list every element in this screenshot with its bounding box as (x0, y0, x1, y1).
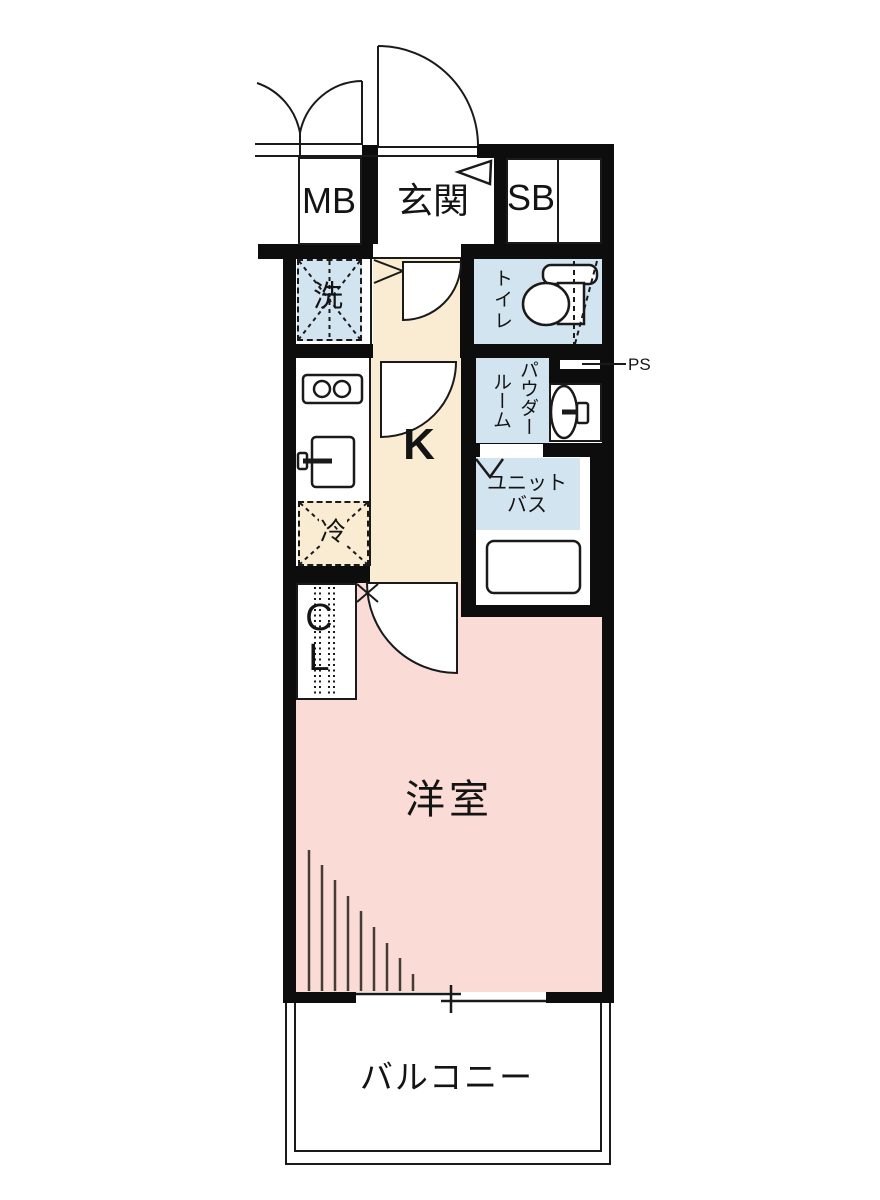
closet-label-line2: L (305, 638, 332, 678)
unit-bath-label-line1: ユニット (487, 474, 567, 496)
unit-bath-label-line2: バス (487, 495, 567, 517)
balcony-label: バルコニー (360, 1061, 534, 1096)
floor-plan: MB 玄関 SB 洗 トイレ K パウダー ルーム PS ユニット バス 冷 C… (0, 0, 880, 1200)
meter-box-door-arcs (257, 81, 362, 157)
entrance-label: 玄関 (397, 182, 469, 220)
western-room-label: 洋室 (405, 779, 493, 821)
powder-room-label-line1: パウダー (514, 360, 541, 472)
meter-box-label: MB (302, 182, 356, 220)
toilet-label: トイレ (491, 269, 511, 332)
stove (303, 375, 362, 403)
kitchen-sink (298, 437, 354, 487)
window-hatch-lines (309, 850, 413, 991)
hall-door (373, 258, 461, 320)
entrance-door (378, 46, 478, 146)
western-room-door (357, 583, 457, 673)
unit-bath-label: ユニット バス (487, 474, 567, 517)
shoe-box-label: SB (507, 179, 555, 217)
closet-label: C L (305, 598, 332, 678)
bathtub (487, 541, 580, 593)
toilet-fixture (523, 265, 597, 325)
closet-label-line1: C (305, 598, 332, 638)
pipe-space-label: PS (628, 355, 651, 375)
corridor-lines (255, 144, 477, 156)
balcony-window (356, 985, 546, 1013)
wash-basin (551, 386, 588, 438)
kitchen-label: K (403, 422, 435, 468)
laundry-label: 洗 (313, 281, 343, 313)
powder-room-label-line2: ルーム (487, 372, 514, 484)
powder-room-label: パウダー ルーム (487, 360, 541, 472)
refrigerator-label: 冷 (319, 518, 347, 545)
